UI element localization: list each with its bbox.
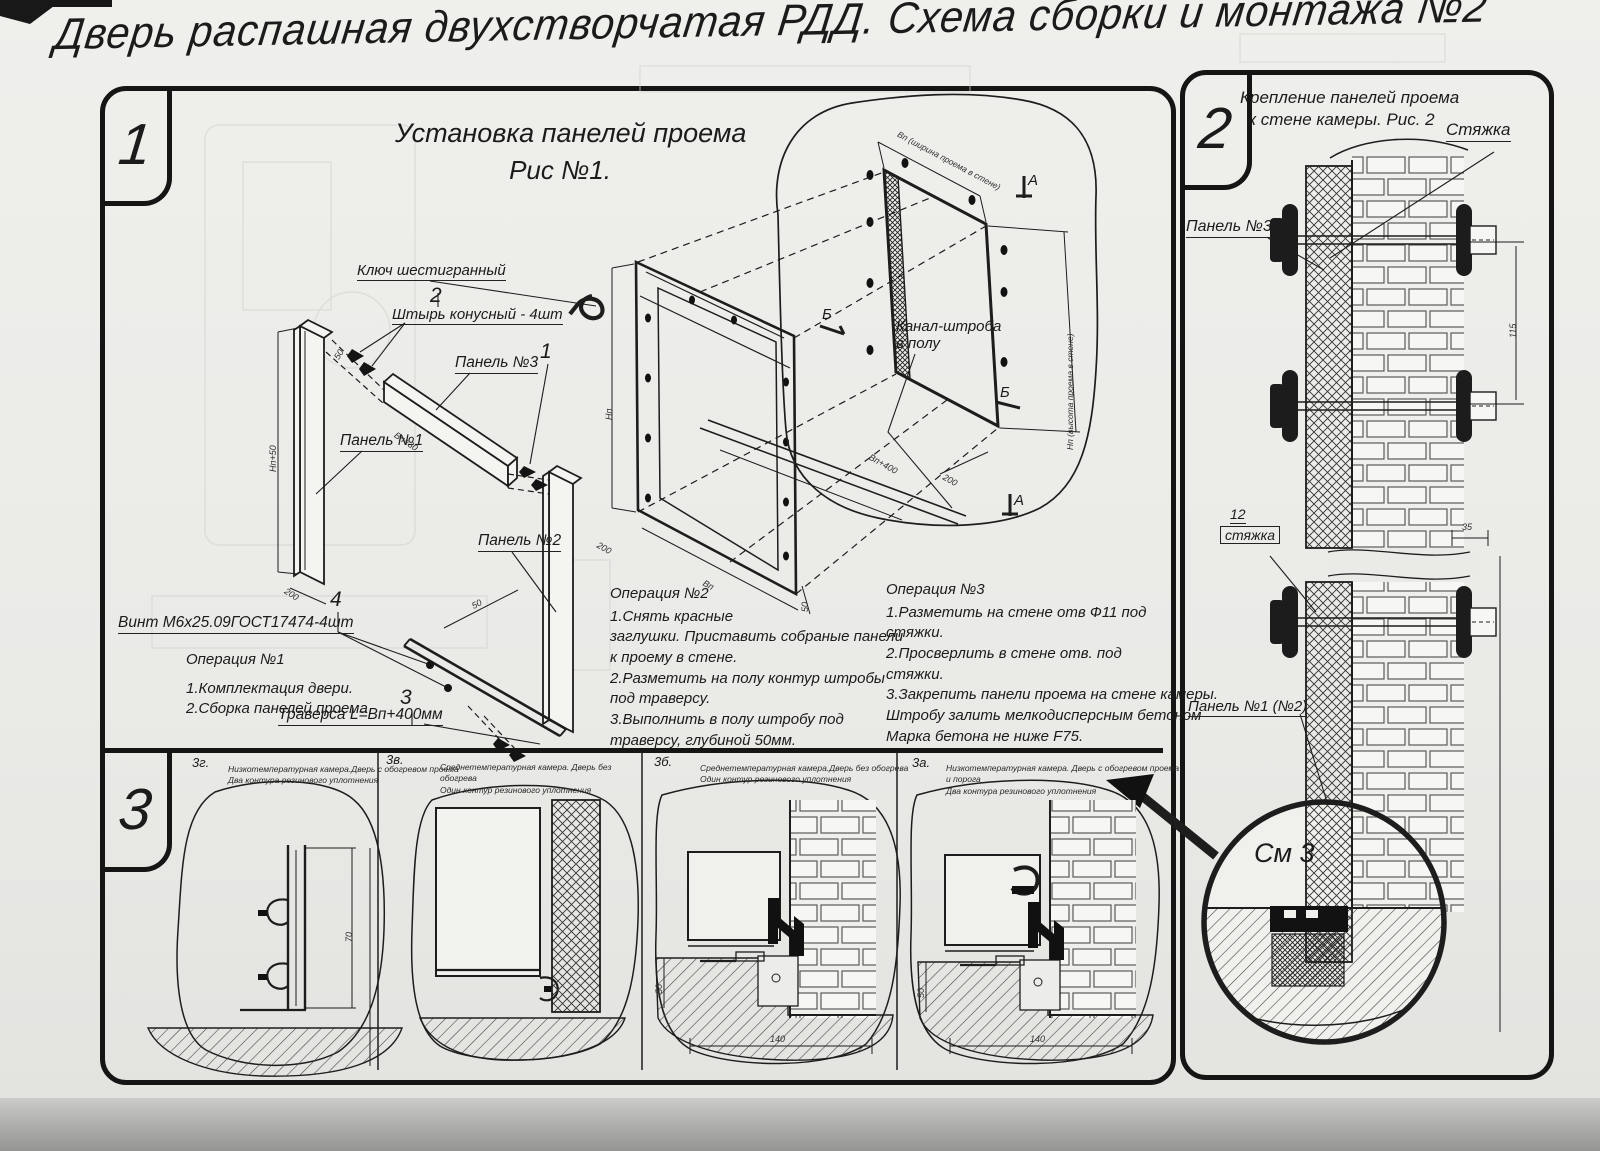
threshold-details	[148, 752, 1159, 1076]
floor-channel-label: Канал-штроба в полу	[896, 318, 1001, 353]
item-no-2: 2	[430, 284, 442, 308]
dim-70-3g: 70	[344, 932, 354, 942]
section1-badge: 1	[103, 89, 172, 206]
operation3-title: Операция №3	[886, 580, 1218, 601]
dim-opening-height: Нп (высота проема в стене)	[1066, 333, 1076, 450]
dim-50-3a: 50	[916, 988, 926, 998]
detail-3b-desc: Среднетемпературная камера.Дверь без обо…	[700, 763, 940, 786]
tie-item-no: 12	[1230, 506, 1246, 524]
panel2-label: Панель №2	[478, 532, 561, 552]
detail-3v-id: 3в.	[386, 753, 404, 768]
dim-frame-height: Нп	[604, 409, 614, 420]
screw-label: Винт М6х25.09ГОСТ17474-4шт	[118, 614, 354, 634]
dim-panel1-height: Нп+50	[268, 445, 278, 472]
item-no-1: 1	[540, 340, 552, 364]
hex-key-label: Ключ шестигранный	[357, 262, 506, 281]
marker-b-right: Б	[1000, 384, 1010, 401]
dim-140-3a: 140	[1030, 1034, 1045, 1044]
detail-3a-id: 3а.	[912, 756, 930, 771]
operation1-title: Операция №1	[186, 650, 368, 671]
marker-b-left: Б	[822, 306, 832, 323]
section3-badge: 3	[103, 753, 172, 872]
dim-140-3b: 140	[770, 1034, 785, 1044]
tie-label-mid: стяжка	[1220, 526, 1280, 544]
drawing-linework	[0, 0, 1600, 1151]
item-no-4: 4	[330, 588, 342, 612]
marker-a-top: А	[1028, 172, 1038, 189]
see-detail-3-label: См 3	[1254, 838, 1315, 869]
panel3-label: Панель №3	[455, 354, 538, 374]
panel3-label-fig2: Панель №3	[1186, 218, 1272, 238]
panel12-label: Панель №1 (№2)	[1188, 698, 1307, 717]
operation1-block: Операция №1 1.Комплектация двери. 2.Сбор…	[186, 650, 368, 720]
dim-50-3b: 50	[654, 984, 664, 994]
cone-pin-label: Штырь конусный - 4шт	[392, 306, 563, 325]
detail-3g-id: 3г.	[192, 756, 209, 771]
dim-115: 115	[1508, 324, 1518, 338]
tie-label-top: Стяжка	[1446, 120, 1511, 142]
marker-a-bottom: А	[1014, 492, 1024, 509]
scanned-drawing-page: 1 2 3	[0, 0, 1600, 1151]
dim-50-frame: 50	[800, 602, 810, 612]
operation3-block: Операция №3 1.Разметить на стене отв Ф11…	[886, 580, 1218, 748]
fig2-title-line1: Крепление панелей проема	[1240, 88, 1459, 108]
operation2-title: Операция №2	[610, 584, 903, 605]
fig1-subtitle: Рис №1.	[395, 156, 725, 186]
fig1-title: Установка панелей проема	[395, 118, 725, 149]
operation2-block: Операция №2 1.Снять красные заглушки. Пр…	[610, 584, 903, 752]
detail-3v-desc: Среднетемпературная камера. Дверь без об…	[440, 762, 630, 796]
detail-3a-desc: Низкотемпературная камера. Дверь с обогр…	[946, 763, 1181, 797]
fig2-title-line2: к стене камеры. Рис. 2	[1248, 110, 1435, 130]
dim-35: 35	[1462, 522, 1472, 532]
detail-3b-id: 3б.	[654, 755, 672, 770]
